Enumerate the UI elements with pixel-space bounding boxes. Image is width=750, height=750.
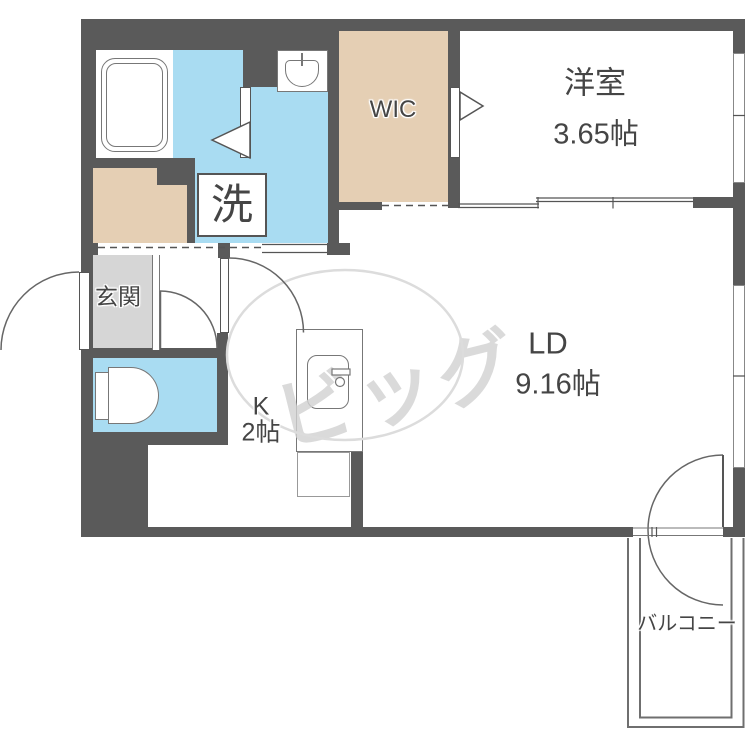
entrance-label: 玄関 <box>95 286 141 309</box>
kitchen-faucet <box>332 369 350 375</box>
balcony-opening-track <box>633 528 723 536</box>
sliding-door-ticks <box>538 197 613 209</box>
entrance-door-arc <box>1 272 79 350</box>
wic-door-triangle <box>460 92 483 120</box>
kitchen-label: K <box>253 395 270 420</box>
kitchen-drain <box>336 378 345 387</box>
laundry-label: 洗 <box>211 184 253 226</box>
sliding-door-lines <box>458 198 693 208</box>
bathroom-door-triangle <box>212 122 250 158</box>
balcony-label: バルコニー <box>637 614 737 634</box>
hall-door-b-arc <box>229 258 304 333</box>
western-room-area: 3.65帖 <box>553 121 638 150</box>
kitchen-area: 2帖 <box>242 421 281 446</box>
western-room-label: 洋室 <box>564 68 626 99</box>
window-ticks <box>733 116 745 377</box>
balcony-door-arc <box>648 455 723 605</box>
living-room-area: 9.16帖 <box>515 371 600 400</box>
washroom-entry-track <box>262 245 327 253</box>
wic-label: WIC <box>370 98 417 122</box>
hall-door-a-arc <box>160 291 217 348</box>
floorplan-canvas: ビッグ <box>0 0 750 750</box>
living-room-label: LD <box>528 328 568 359</box>
